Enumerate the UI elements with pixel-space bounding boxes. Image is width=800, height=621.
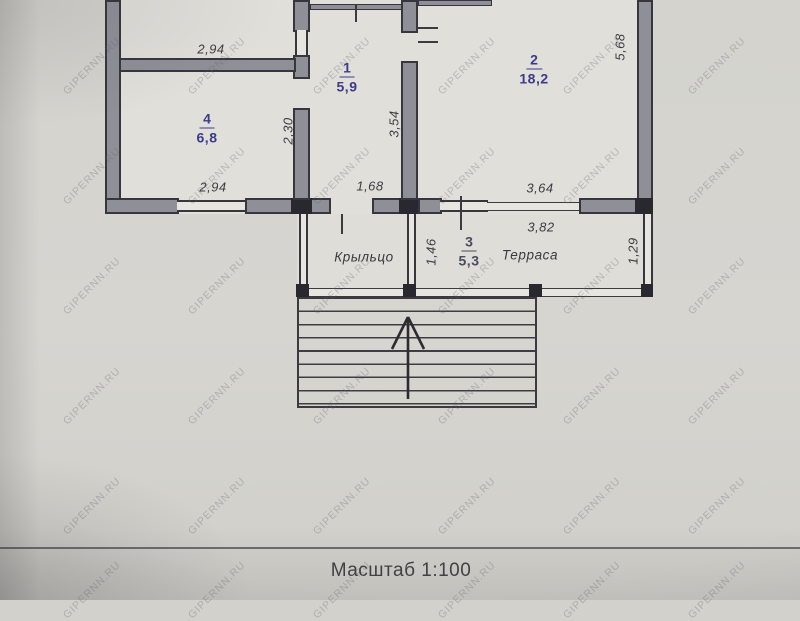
wall-interior-left <box>293 108 310 200</box>
window-room2 <box>440 200 488 212</box>
terrace-open-edge <box>487 202 581 211</box>
wall-interior-right <box>401 61 418 200</box>
wall-junction-post <box>291 198 312 214</box>
watermark: GIPERNN.RU <box>311 475 373 537</box>
porch-label: Крыльцо <box>334 250 394 265</box>
dim-room4-width: 2,94 <box>199 180 226 195</box>
room-1-label: 1 5,9 <box>337 61 358 94</box>
dim-room4-depth: 2,30 <box>281 117 296 144</box>
porch-corner-post <box>296 284 309 297</box>
wall-bottom-segment <box>579 198 639 214</box>
watermark: GIPERNN.RU <box>186 255 248 317</box>
watermark: GIPERNN.RU <box>686 255 748 317</box>
dim-terrace-width: 3,82 <box>527 220 554 235</box>
room-1-area: 5,9 <box>337 80 358 94</box>
watermark: GIPERNN.RU <box>186 365 248 427</box>
porch-wall-left <box>299 214 308 290</box>
terrace-label: Терраса <box>502 248 558 263</box>
wall-exterior-left <box>105 0 121 214</box>
wall-corner-post <box>635 198 653 214</box>
wall-exterior-right <box>637 0 653 214</box>
room-4-number: 4 <box>199 112 215 129</box>
wall-junction-post <box>399 198 420 214</box>
dim-terrace-depth: 1,29 <box>626 237 641 264</box>
watermark: GIPERNN.RU <box>61 365 123 427</box>
room-1-number: 1 <box>339 61 355 78</box>
terrace-corner-post <box>641 284 653 297</box>
watermark: GIPERNN.RU <box>186 475 248 537</box>
watermark: GIPERNN.RU <box>61 559 123 621</box>
room-2-area: 18,2 <box>519 72 548 86</box>
wall-bottom-segment <box>105 198 179 214</box>
scanned-floorplan-page: 1 5,9 2 18,2 3 5,3 4 6,8 2,94 2,94 2,30 … <box>0 0 800 600</box>
door-leaf-porch-entrance <box>341 214 343 234</box>
room-2-label: 2 18,2 <box>519 53 548 86</box>
window-room4 <box>177 200 247 212</box>
watermark: GIPERNN.RU <box>686 145 748 207</box>
room-2-number: 2 <box>526 53 542 70</box>
porch-wall-right <box>407 214 416 290</box>
room-3-number: 3 <box>461 235 477 252</box>
wall-room4-top <box>119 58 296 72</box>
watermark: GIPERNN.RU <box>436 475 498 537</box>
room-4-label: 4 6,8 <box>197 112 218 145</box>
door-swing-mark <box>418 27 438 29</box>
wall-bottom-segment <box>245 198 331 214</box>
watermark: GIPERNN.RU <box>61 475 123 537</box>
wall-interior-left <box>293 0 310 32</box>
wall-bottom-segment <box>418 198 442 214</box>
terrace-wall-right <box>643 214 653 292</box>
dim-room2-depth: 5,68 <box>613 33 628 60</box>
dimension-tick <box>355 4 357 22</box>
room-4-area: 6,8 <box>197 131 218 145</box>
room-3-label: 3 5,3 <box>459 235 480 268</box>
watermark: GIPERNN.RU <box>561 559 623 621</box>
dim-upper-room-width: 2,94 <box>197 42 224 57</box>
dim-room1-width: 1,68 <box>356 179 383 194</box>
wall-room2-top-stub <box>418 0 492 6</box>
footer-divider-line <box>0 547 800 549</box>
watermark: GIPERNN.RU <box>561 365 623 427</box>
porch-corner-post <box>403 284 416 297</box>
wall-interior-right <box>401 0 418 33</box>
dim-room1-depth: 3,54 <box>387 110 402 137</box>
dimension-extension-line <box>460 196 462 230</box>
window-upper-room <box>295 30 308 57</box>
watermark: GIPERNN.RU <box>61 255 123 317</box>
watermark: GIPERNN.RU <box>686 559 748 621</box>
door-swing-mark <box>418 41 438 43</box>
room-3-area: 5,3 <box>459 254 480 268</box>
dim-porch-depth: 1,46 <box>424 238 439 265</box>
watermark: GIPERNN.RU <box>186 559 248 621</box>
scale-label: Масштаб 1:100 <box>331 560 472 582</box>
watermark: GIPERNN.RU <box>686 475 748 537</box>
watermark: GIPERNN.RU <box>686 35 748 97</box>
stairs-up-arrow-icon <box>388 303 428 403</box>
terrace-corner-post <box>529 284 542 297</box>
dim-room2-width: 3,64 <box>526 181 553 196</box>
watermark: GIPERNN.RU <box>561 475 623 537</box>
watermark: GIPERNN.RU <box>686 365 748 427</box>
porch-terrace-bottom-edge <box>296 288 653 297</box>
